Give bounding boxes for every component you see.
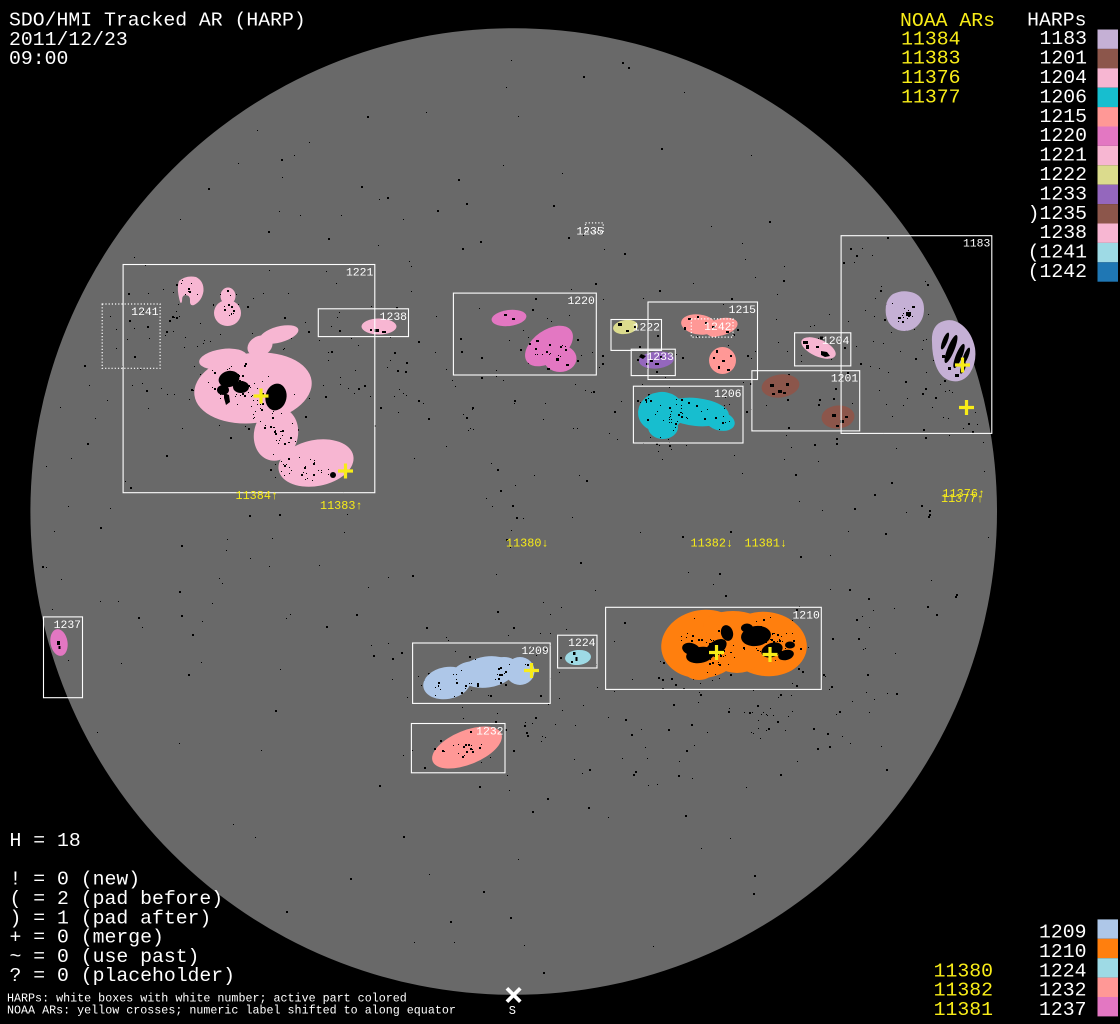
svg-text:11380↓: 11380↓	[506, 537, 548, 551]
svg-text:1232: 1232	[476, 727, 504, 739]
svg-text:11377↑: 11377↑	[941, 492, 983, 506]
svg-text:NOAA ARs: yellow crosses; nume: NOAA ARs: yellow crosses; numeric label …	[7, 1003, 456, 1017]
svg-text:11381: 11381	[934, 999, 993, 1021]
svg-text:1237: 1237	[1039, 999, 1086, 1021]
svg-text:1235: 1235	[576, 226, 604, 238]
svg-text:11383↑: 11383↑	[320, 499, 362, 513]
svg-text:(1242: (1242	[1028, 261, 1087, 283]
svg-text:1222: 1222	[633, 323, 661, 335]
svg-text:1183: 1183	[963, 239, 991, 251]
svg-text:1241: 1241	[131, 307, 159, 319]
svg-text:1233: 1233	[646, 352, 674, 364]
svg-text:1220: 1220	[567, 296, 595, 308]
svg-text:1221: 1221	[346, 268, 374, 280]
svg-text:1201: 1201	[831, 374, 859, 386]
svg-text:11377: 11377	[901, 87, 960, 109]
svg-text:1238: 1238	[380, 312, 408, 324]
svg-text:1206: 1206	[714, 389, 742, 401]
svg-text:1224: 1224	[568, 638, 596, 650]
svg-text:11384↑: 11384↑	[236, 489, 278, 503]
svg-text:1215: 1215	[729, 305, 757, 317]
svg-text:S: S	[509, 1004, 516, 1018]
svg-text:11382↓: 11382↓	[691, 537, 733, 551]
svg-text:1209: 1209	[521, 646, 549, 658]
svg-text:1237: 1237	[54, 620, 81, 632]
svg-text:H = 18: H = 18	[10, 830, 81, 852]
svg-text:? = 0 (placeholder): ? = 0 (placeholder)	[10, 965, 236, 987]
svg-text:09:00: 09:00	[9, 48, 68, 70]
svg-text:1242: 1242	[704, 322, 732, 334]
svg-text:11381↓: 11381↓	[745, 537, 787, 551]
svg-text:1204: 1204	[822, 336, 850, 348]
svg-text:1210: 1210	[792, 610, 820, 622]
